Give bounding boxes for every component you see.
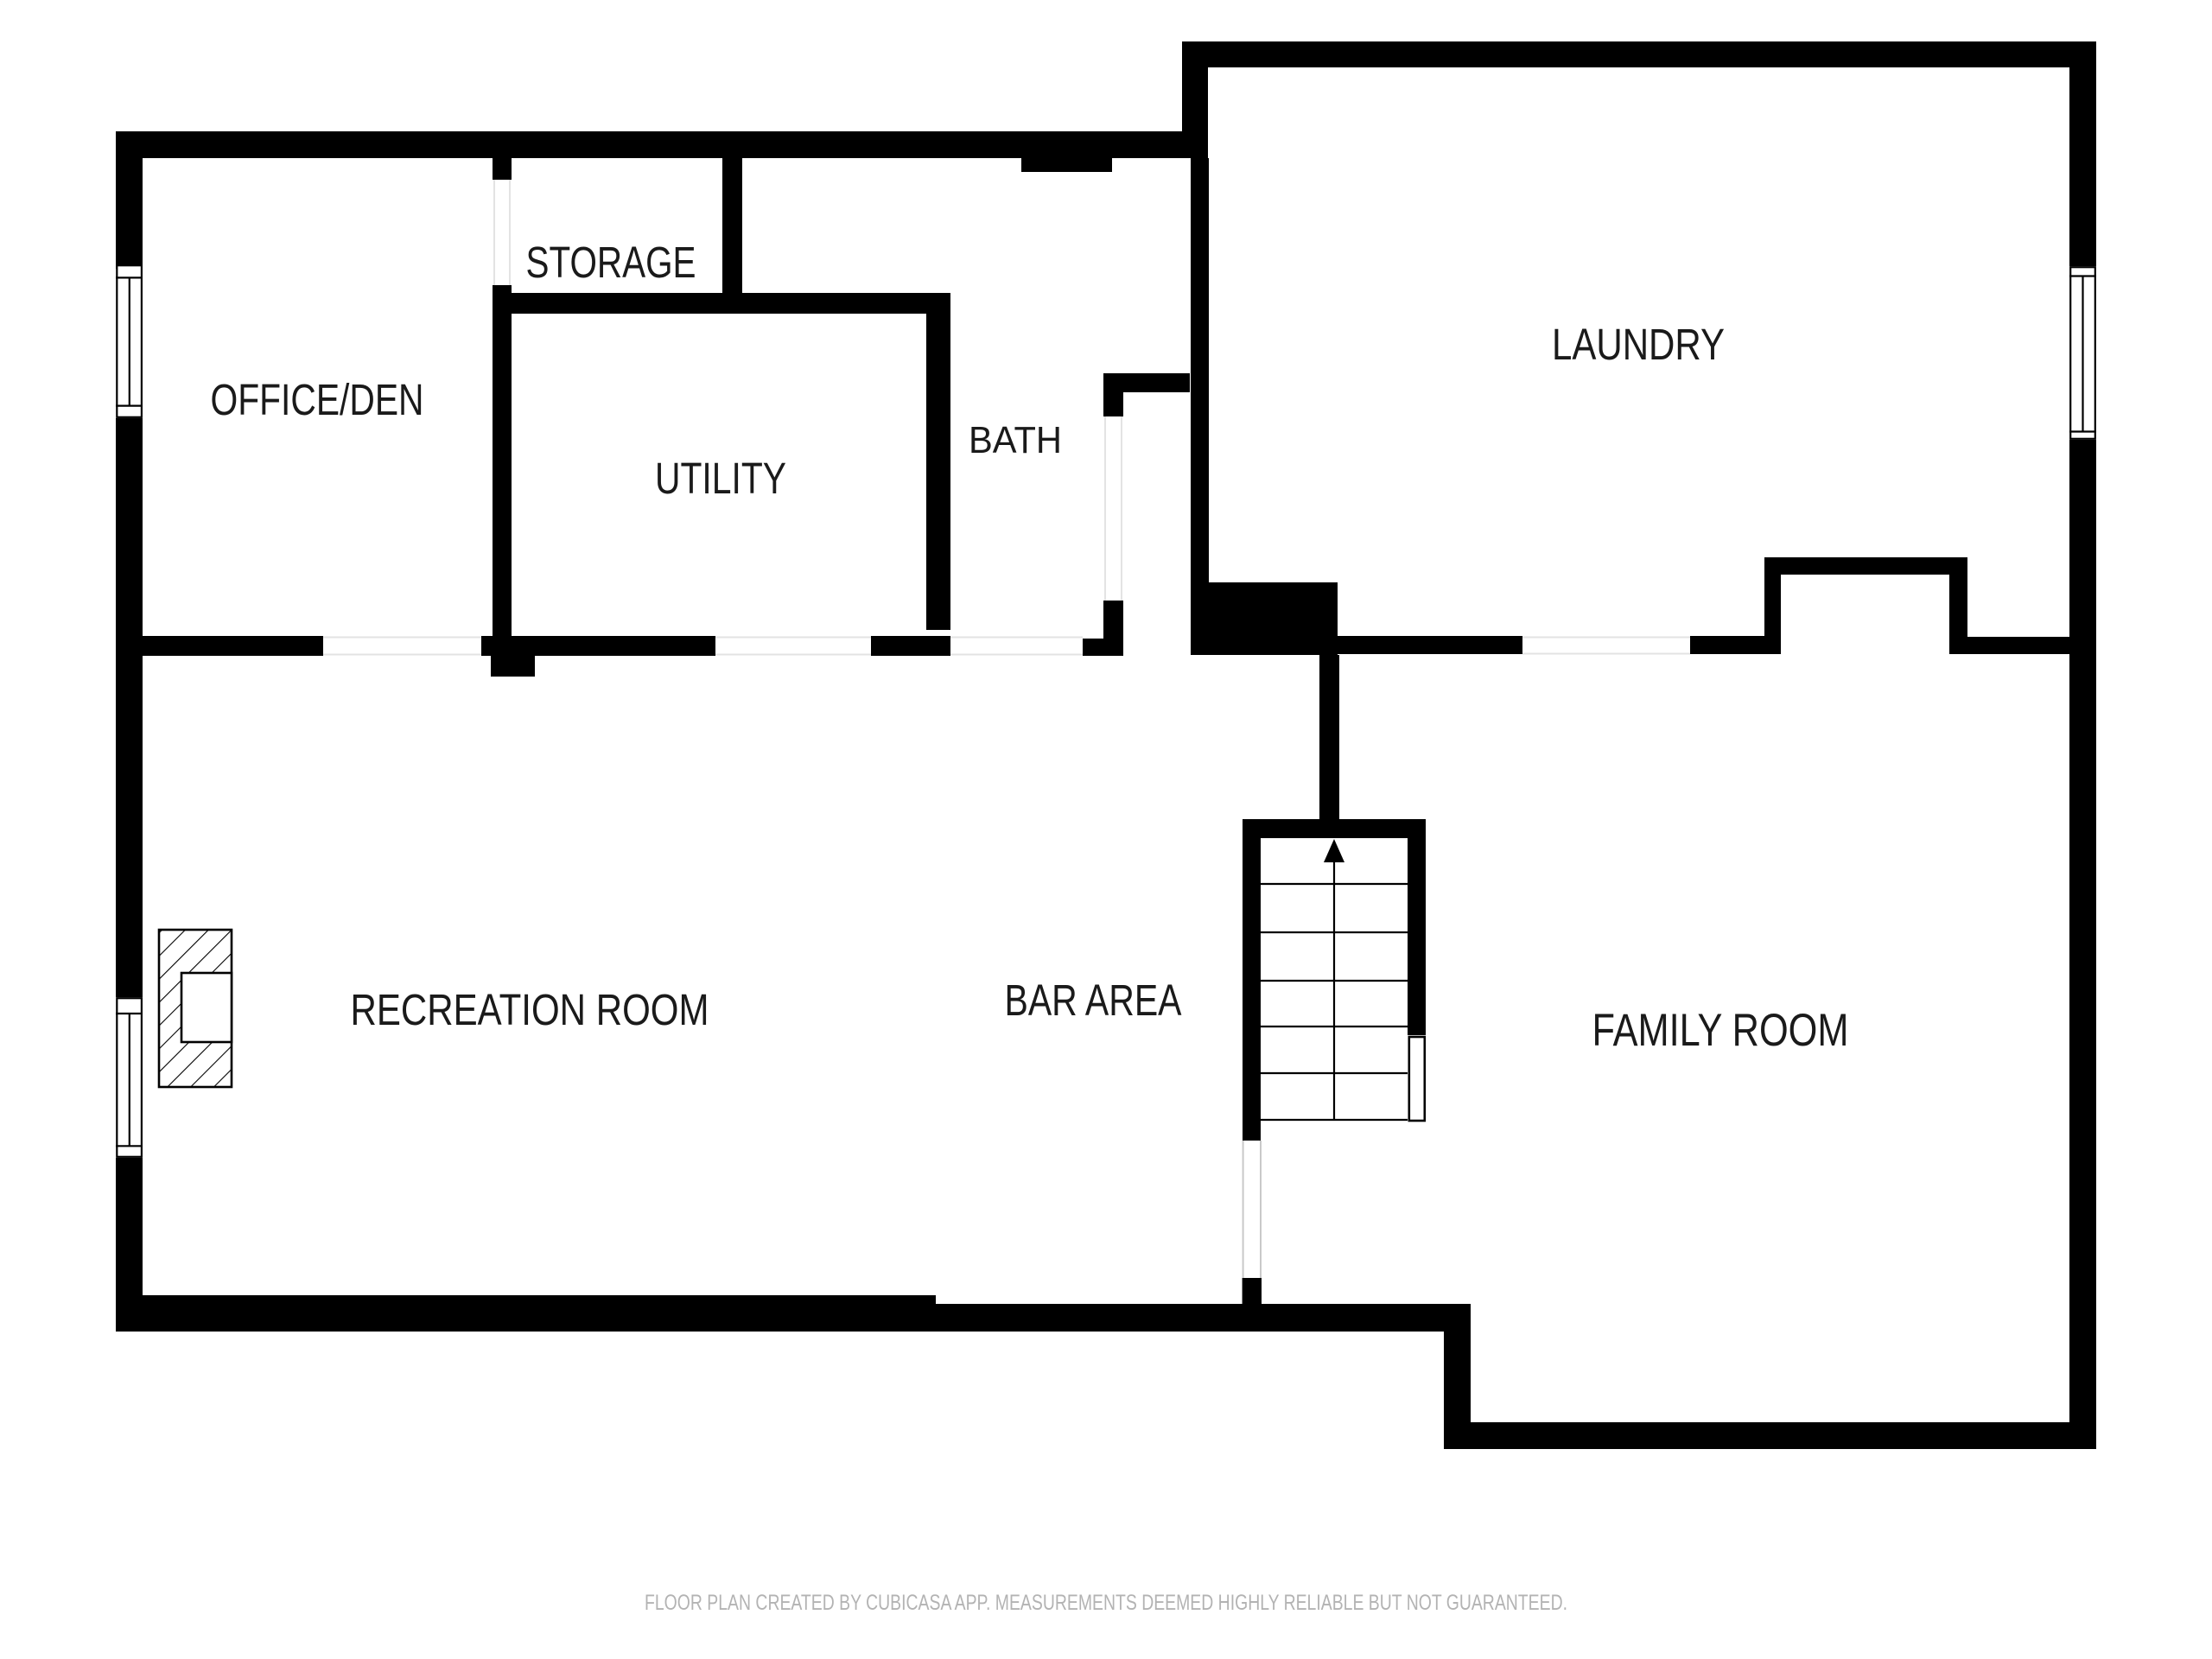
svg-text:BAR AREA: BAR AREA: [1005, 976, 1182, 1025]
svg-text:FLOOR PLAN CREATED BY CUBICASA: FLOOR PLAN CREATED BY CUBICASA APP. MEAS…: [645, 1591, 1567, 1615]
svg-text:LAUNDRY: LAUNDRY: [1552, 320, 1725, 369]
svg-text:STORAGE: STORAGE: [526, 238, 696, 287]
svg-text:RECREATION ROOM: RECREATION ROOM: [351, 985, 709, 1034]
svg-text:OFFICE/DEN: OFFICE/DEN: [211, 375, 424, 424]
svg-text:BATH: BATH: [969, 419, 1062, 461]
svg-text:UTILITY: UTILITY: [655, 454, 786, 503]
svg-text:FAMILY ROOM: FAMILY ROOM: [1592, 1005, 1849, 1056]
